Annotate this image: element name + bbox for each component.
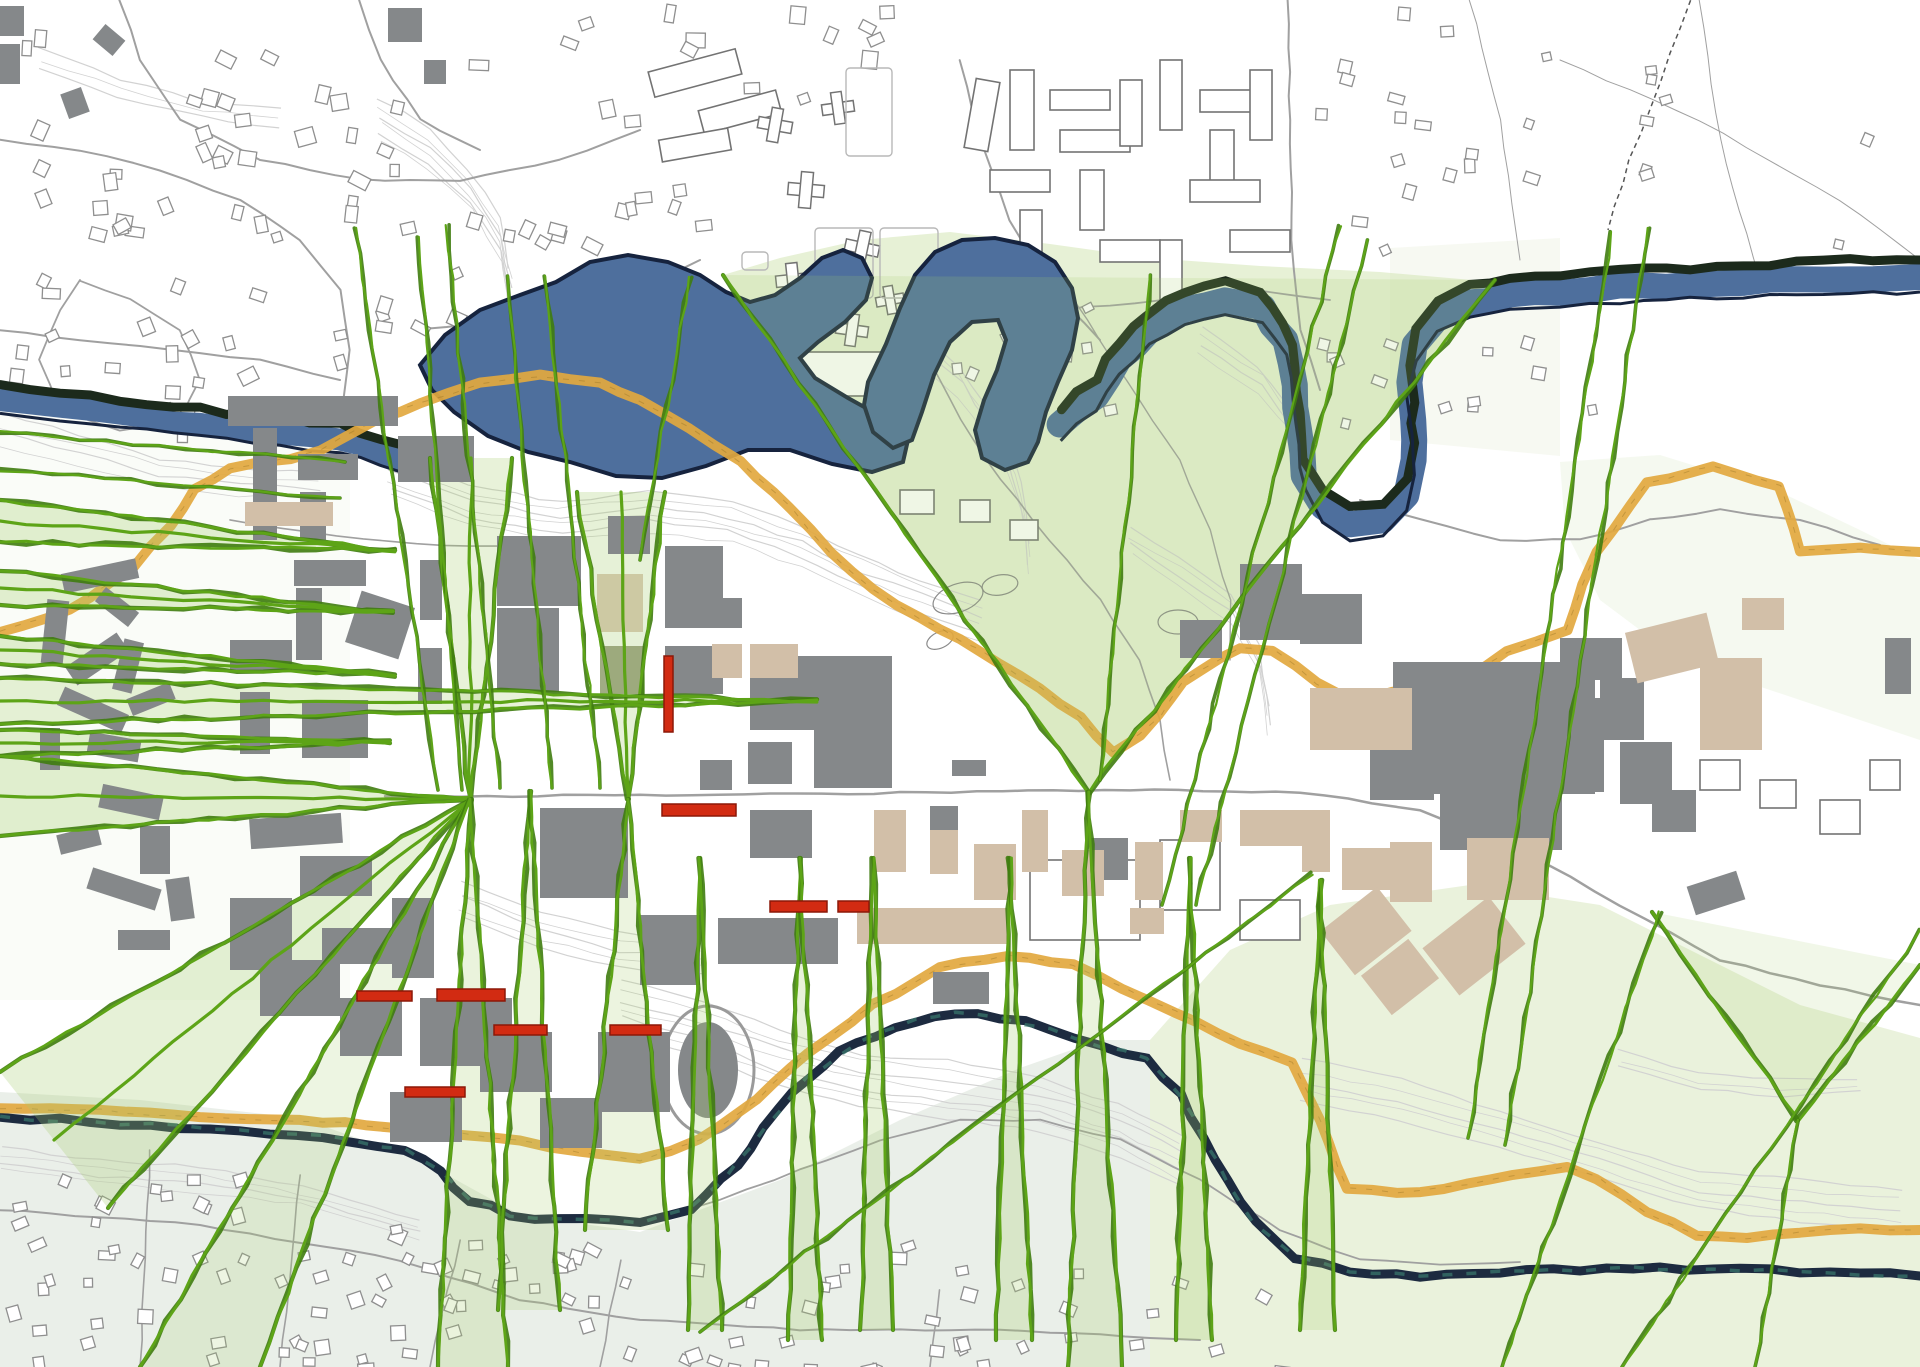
house-footprint <box>311 1307 327 1318</box>
house-footprint <box>1524 118 1535 130</box>
house-footprint <box>348 171 371 191</box>
house-footprint <box>16 345 29 360</box>
house-footprint <box>391 100 405 115</box>
house-footprint <box>181 330 199 349</box>
house-footprint <box>1833 239 1844 250</box>
footpath-dashed <box>1608 0 1691 230</box>
house-footprint <box>279 1348 289 1358</box>
house-footprint <box>162 1268 178 1283</box>
house-footprint <box>1465 148 1478 160</box>
house-footprint <box>929 1345 944 1357</box>
house-footprint <box>673 184 687 197</box>
house-footprint <box>60 366 70 377</box>
house-footprint <box>977 1359 990 1367</box>
outlined-building <box>1760 780 1796 808</box>
outlined-building <box>659 128 732 162</box>
house-footprint <box>314 1339 330 1356</box>
house-footprint <box>271 231 283 243</box>
red-barrier-marker <box>357 991 412 1001</box>
outlined-building <box>1820 800 1860 834</box>
campus-building-gray <box>249 813 343 849</box>
house-footprint <box>254 215 268 233</box>
house-footprint <box>376 296 393 315</box>
outlined-building <box>1700 760 1740 790</box>
outlined-building <box>1080 170 1104 230</box>
campus-building-gray <box>718 918 838 964</box>
house-footprint <box>1402 184 1416 201</box>
house-footprint <box>1129 1339 1144 1350</box>
house-footprint <box>42 288 60 299</box>
house-footprint <box>166 346 178 362</box>
house-footprint <box>33 1356 46 1367</box>
house-footprint <box>1391 154 1405 168</box>
house-footprint <box>1352 216 1368 228</box>
house-footprint <box>193 377 205 388</box>
campus-building-gray <box>700 760 732 790</box>
campus-building-gray <box>1370 742 1434 800</box>
house-footprint <box>1646 74 1657 85</box>
house-footprint <box>1468 396 1481 407</box>
proposed-building-tan <box>1700 658 1762 750</box>
house-footprint <box>35 189 52 208</box>
house-footprint <box>1587 404 1597 415</box>
house-footprint <box>212 156 225 169</box>
house-footprint <box>171 278 186 295</box>
outlined-building <box>1120 80 1142 146</box>
site-analysis-map <box>0 0 1920 1367</box>
house-footprint <box>744 83 760 94</box>
contour-line <box>377 99 508 269</box>
house-footprint <box>84 1278 93 1287</box>
house-footprint <box>1440 26 1453 37</box>
house-footprint <box>626 201 638 216</box>
house-footprint <box>375 320 392 333</box>
house-footprint <box>158 197 174 215</box>
house-footprint <box>548 222 567 237</box>
house-footprint <box>956 1265 969 1276</box>
house-footprint <box>1415 120 1432 130</box>
house-footprint <box>261 50 279 66</box>
house-footprint <box>503 229 515 242</box>
proposed-building-tan <box>1390 842 1432 902</box>
house-footprint <box>187 95 203 108</box>
house-footprint <box>1395 112 1406 124</box>
house-footprint <box>1640 115 1654 126</box>
house-footprint <box>13 1201 28 1212</box>
campus-building-gray <box>1560 638 1622 680</box>
house-footprint <box>1531 366 1546 381</box>
proposed-building-tan <box>857 908 1007 944</box>
campus-building-gray <box>640 915 700 985</box>
house-footprint <box>165 386 180 400</box>
campus-building-gray <box>1885 638 1911 694</box>
cross-shaped-building <box>786 170 825 209</box>
red-barrier-marker <box>610 1025 661 1035</box>
campus-building-gray <box>60 87 90 119</box>
campus-building-gray <box>933 972 989 1004</box>
campus-building-gray <box>0 6 24 36</box>
red-barrier-marker <box>494 1025 547 1035</box>
red-barrier-marker <box>838 901 869 912</box>
house-cluster <box>1639 66 1874 250</box>
house-footprint <box>1379 244 1391 256</box>
campus-building-gray <box>345 591 415 660</box>
outlined-building <box>1250 70 1272 140</box>
house-footprint <box>32 1325 46 1336</box>
road <box>1469 0 1520 260</box>
house-footprint <box>33 160 50 178</box>
house-footprint <box>391 1325 406 1340</box>
house-footprint <box>161 1191 173 1201</box>
house-footprint <box>1860 133 1874 148</box>
outlined-building <box>1230 230 1290 252</box>
house-footprint <box>1464 159 1475 173</box>
house-footprint <box>1147 1309 1159 1318</box>
campus-building-gray <box>140 826 170 874</box>
house-footprint <box>1398 7 1411 21</box>
campus-building-gray <box>228 396 398 426</box>
outlined-building <box>990 170 1050 192</box>
campus-building-gray <box>814 656 892 788</box>
house-footprint <box>303 1358 315 1367</box>
house-footprint <box>466 212 483 230</box>
house-footprint <box>334 329 348 341</box>
house-footprint <box>1659 94 1672 105</box>
house-footprint <box>330 93 349 111</box>
house-footprint <box>91 1217 101 1227</box>
house-footprint <box>34 30 47 48</box>
campus-building-gray <box>420 560 442 620</box>
red-barrier-marker <box>437 989 505 1001</box>
house-footprint <box>1338 59 1353 74</box>
proposed-building-tan <box>712 644 742 678</box>
outlined-building <box>1190 180 1260 202</box>
campus-building-gray <box>93 24 126 56</box>
campus-building-gray <box>700 598 742 628</box>
house-footprint <box>234 113 251 127</box>
proposed-building-tan <box>874 810 906 872</box>
house-footprint <box>859 19 877 35</box>
campus-building-gray <box>294 560 366 586</box>
house-footprint <box>1523 171 1540 185</box>
house-footprint <box>1645 66 1657 75</box>
house-footprint <box>346 127 357 143</box>
outlined-building <box>964 78 1000 151</box>
proposed-building-tan <box>245 502 333 526</box>
proposed-building-tan <box>1240 810 1302 846</box>
house-footprint <box>664 4 676 23</box>
red-barrier-marker <box>770 901 827 912</box>
house-footprint <box>1483 347 1493 356</box>
house-footprint <box>635 192 652 204</box>
house-footprint <box>223 336 235 351</box>
house-footprint <box>390 1224 403 1234</box>
house-footprint <box>217 94 235 112</box>
house-footprint <box>668 199 681 215</box>
house-footprint <box>840 1264 850 1273</box>
house-footprint <box>9 368 24 383</box>
house-footprint <box>249 288 266 303</box>
house-footprint <box>1388 92 1405 104</box>
house-footprint <box>232 205 244 221</box>
house-footprint <box>961 1287 978 1303</box>
house-footprint <box>22 41 32 56</box>
house-footprint <box>729 1336 744 1348</box>
house-footprint <box>390 164 399 176</box>
house-footprint <box>237 366 259 386</box>
house-footprint <box>624 115 641 128</box>
house-footprint <box>581 237 603 256</box>
campus-building-gray <box>388 8 422 42</box>
house-footprint <box>137 317 155 336</box>
campus-building-gray <box>598 1032 670 1112</box>
house-footprint <box>695 220 712 232</box>
house-footprint <box>91 1318 104 1329</box>
proposed-building-tan <box>1742 598 1784 630</box>
house-footprint <box>315 85 331 105</box>
house-footprint <box>334 354 348 370</box>
proposed-building-tan <box>1135 842 1163 900</box>
campus-building-gray <box>748 742 792 784</box>
road <box>1699 0 1760 280</box>
house-footprint <box>196 143 213 163</box>
house-footprint <box>238 150 257 167</box>
proposed-building-tan <box>930 830 958 874</box>
red-barrier-marker <box>405 1087 465 1097</box>
campus-building-gray <box>118 930 170 950</box>
campus-building-gray <box>1652 790 1696 832</box>
house-footprint <box>1542 52 1552 62</box>
road <box>1560 60 1920 260</box>
house-footprint <box>294 127 316 148</box>
house-footprint <box>561 36 579 50</box>
house-footprint <box>755 1360 769 1367</box>
outlined-building <box>1870 760 1900 790</box>
cross-shaped-building <box>820 90 856 126</box>
house-footprint <box>469 60 489 71</box>
house-footprint <box>535 235 551 250</box>
red-barrier-marker <box>662 804 736 816</box>
campus-building-gray <box>1300 594 1362 644</box>
house-footprint <box>215 50 236 69</box>
house-footprint <box>589 1296 600 1308</box>
house-footprint <box>1340 72 1355 86</box>
campus-building-gray <box>952 760 986 776</box>
house-footprint <box>108 1245 120 1255</box>
campus-building-gray <box>296 588 322 660</box>
house-footprint <box>138 1309 154 1324</box>
house-cluster <box>1316 7 1552 256</box>
campus-building-gray <box>1687 871 1746 916</box>
house-footprint <box>187 1175 200 1186</box>
house-footprint <box>31 120 50 141</box>
house-footprint <box>1316 108 1328 120</box>
outlined-building <box>1050 90 1110 110</box>
house-footprint <box>861 50 878 69</box>
red-barrier-marker <box>664 656 673 732</box>
map-canvas <box>0 0 1920 1367</box>
corridor-lawn-panel <box>597 574 643 632</box>
house-footprint <box>789 6 806 25</box>
house-footprint <box>357 1354 368 1365</box>
house-footprint <box>599 99 616 119</box>
campus-building-gray <box>750 810 812 858</box>
proposed-building-tan <box>1022 810 1048 872</box>
proposed-building-tan <box>750 644 798 678</box>
house-footprint <box>37 273 52 289</box>
proposed-building-tan <box>1310 688 1412 750</box>
outlined-building <box>1160 60 1182 130</box>
house-footprint <box>519 220 536 239</box>
house-footprint <box>103 173 118 191</box>
house-footprint <box>880 6 895 19</box>
campus-building-gray <box>0 44 20 84</box>
outlined-building <box>1010 70 1034 150</box>
house-footprint <box>93 201 108 216</box>
house-footprint <box>400 221 416 235</box>
house-footprint <box>578 17 594 31</box>
campus-building-gray <box>302 700 368 758</box>
house-footprint <box>105 363 120 374</box>
house-footprint <box>345 205 359 223</box>
house-footprint <box>402 1348 417 1359</box>
house-footprint <box>377 143 394 159</box>
campus-building-gray <box>540 808 628 898</box>
house-footprint <box>89 227 107 243</box>
house-footprint <box>891 1252 907 1265</box>
house-footprint <box>1443 168 1457 183</box>
proposed-building-tan <box>1342 848 1394 890</box>
proposed-building-tan <box>1302 810 1330 872</box>
proposed-building-tan <box>1130 908 1164 934</box>
campus-building-gray <box>1600 678 1644 740</box>
house-footprint <box>823 26 838 44</box>
house-footprint <box>797 92 810 105</box>
campus-building-gray <box>424 60 446 84</box>
campus-building-gray <box>497 536 581 606</box>
outlined-building <box>1100 240 1160 262</box>
campus-building-gray <box>497 608 559 692</box>
